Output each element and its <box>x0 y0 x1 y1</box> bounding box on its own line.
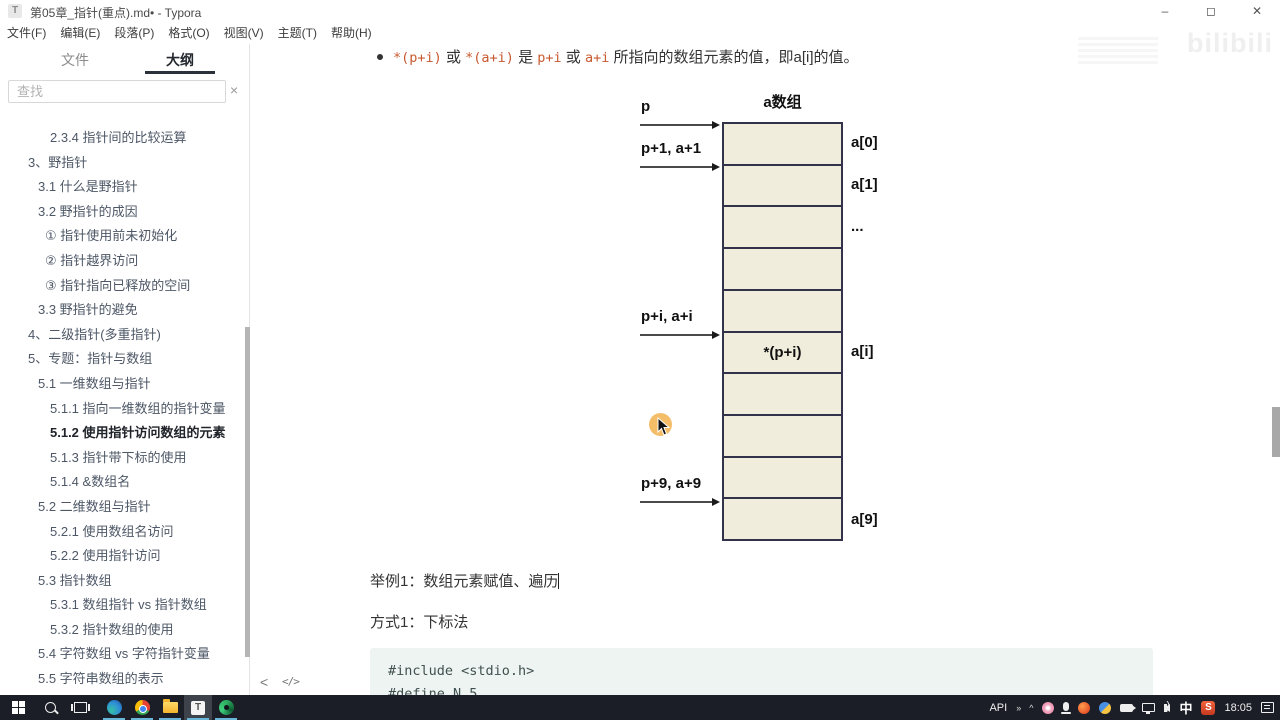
taskbar-typora-button[interactable]: T <box>184 695 212 720</box>
tab-outline[interactable]: 大纲 <box>140 50 220 70</box>
plain-text: 或 <box>562 49 585 66</box>
search-close-icon[interactable]: × <box>230 82 238 98</box>
clock[interactable]: 18:05 <box>1224 702 1252 714</box>
task-view-button[interactable] <box>66 695 94 720</box>
pointer-label: p+9, a+9 <box>641 475 701 492</box>
sidebar: 文件 大纲 × 2.3.4 指针间的比较运算3、野指针3.1 什么是野指针3.2… <box>0 44 250 695</box>
notification-center-icon[interactable] <box>1261 702 1274 713</box>
outline-item[interactable]: 4、二级指针(多重指针) <box>0 323 244 348</box>
code-line: #include <stdio.h> <box>388 660 1135 683</box>
menu-item-2[interactable]: 段落(P) <box>107 22 161 44</box>
system-tray: API » ^ 中 S 18:05 <box>989 695 1280 720</box>
array-cell-4 <box>724 291 841 333</box>
outline-item[interactable]: 5.2.2 使用指针访问 <box>0 544 244 569</box>
outline-item[interactable]: 5.1.3 指针带下标的使用 <box>0 446 244 471</box>
outline-item[interactable]: 3.2 野指针的成因 <box>0 200 244 225</box>
tab-files[interactable]: 文件 <box>35 50 115 70</box>
outline-item[interactable]: 5.1 一维数组与指针 <box>0 372 244 397</box>
outline-item[interactable]: 5.3 指针数组 <box>0 569 244 594</box>
outline-item[interactable]: 5.3.1 数组指针 vs 指针数组 <box>0 593 244 618</box>
outline-item[interactable]: 5.2.1 使用数组名访问 <box>0 520 244 545</box>
inline-code: p+i <box>537 50 561 66</box>
code-block[interactable]: #include <stdio.h>#define N 5 <box>370 648 1153 695</box>
maximize-button[interactable]: ◻ <box>1188 0 1234 22</box>
taskbar-chrome-button[interactable] <box>128 695 156 720</box>
close-button[interactable]: ✕ <box>1234 0 1280 22</box>
array-cell-1 <box>724 166 841 208</box>
watermark-uploader <box>1078 36 1158 64</box>
array-cell-3 <box>724 249 841 291</box>
outline-search-input[interactable] <box>8 80 226 103</box>
outline-item[interactable]: ② 指针越界访问 <box>0 249 244 274</box>
outline-item[interactable]: ③ 指针指向已释放的空间 <box>0 274 244 299</box>
outline-item[interactable]: 3.3 野指针的避免 <box>0 298 244 323</box>
array-cell-7 <box>724 416 841 458</box>
title-bar: T 第05章_指针(重点).md• - Typora – ◻ ✕ <box>0 0 1280 22</box>
menu-item-6[interactable]: 帮助(H) <box>324 22 379 44</box>
camera-tray-icon[interactable] <box>1120 704 1133 712</box>
array-cell-6 <box>724 374 841 416</box>
minimize-button[interactable]: – <box>1142 0 1188 22</box>
typora-icon: T <box>191 701 205 715</box>
outline-list: 2.3.4 指针间的比较运算3、野指针3.1 什么是野指针3.2 野指针的成因①… <box>0 126 244 692</box>
array-index-label: a[i] <box>851 343 874 360</box>
file-explorer-icon <box>163 702 178 713</box>
search-icon <box>45 702 56 713</box>
ime-api-label[interactable]: API <box>989 702 1007 714</box>
start-button[interactable] <box>4 695 32 720</box>
active-tab-underline <box>145 71 215 74</box>
code-line: #define N 5 <box>388 683 1135 695</box>
taskbar-search-button[interactable] <box>36 695 64 720</box>
display-tray-icon[interactable] <box>1142 703 1155 712</box>
windows-logo-icon <box>12 701 25 714</box>
array-cell-8 <box>724 458 841 500</box>
bullet-icon <box>377 54 383 60</box>
outline-item[interactable]: 5.5 字符串数组的表示 <box>0 667 244 692</box>
text-caret <box>558 573 559 589</box>
menu-item-1[interactable]: 编辑(E) <box>53 22 107 44</box>
example-text: 举例1：数组元素赋值、遍历 <box>370 573 558 590</box>
window-title: 第05章_指针(重点).md• - Typora <box>30 4 201 21</box>
pointer-arrow <box>640 501 714 503</box>
task-view-icon <box>74 702 87 713</box>
source-mode-icon[interactable]: </> <box>282 675 299 688</box>
method-heading[interactable]: 方式1：下标法 <box>370 611 468 632</box>
outline-item[interactable]: 3.1 什么是野指针 <box>0 175 244 200</box>
inline-code: a+i <box>585 50 609 66</box>
array-cell-0 <box>724 124 841 166</box>
array-cell-9 <box>724 499 841 539</box>
taskbar-edge-button[interactable] <box>100 695 128 720</box>
array-index-label: ... <box>851 218 864 235</box>
pointer-arrow <box>640 334 714 336</box>
example-heading[interactable]: 举例1：数组元素赋值、遍历 <box>370 570 559 591</box>
pointer-label: p+i, a+i <box>641 308 693 325</box>
outline-item[interactable]: 5.1.1 指向一维数组的指针变量 <box>0 397 244 422</box>
outline-item[interactable]: 5.3.2 指针数组的使用 <box>0 618 244 643</box>
taskbar-explorer-button[interactable] <box>156 695 184 720</box>
inline-code: *(a+i) <box>465 50 514 66</box>
sidebar-collapse-icon[interactable]: < <box>260 674 268 690</box>
pointer-label: p+1, a+1 <box>641 140 701 157</box>
outline-item[interactable]: 5.2 二维数组与指针 <box>0 495 244 520</box>
outline-item[interactable]: 3、野指针 <box>0 151 244 176</box>
array-cell-5: *(p+i) <box>724 333 841 375</box>
qq-tray-icon[interactable] <box>1099 702 1111 714</box>
typora-app-icon: T <box>8 4 22 18</box>
bullet-paragraph[interactable]: *(p+i) 或 *(a+i) 是 p+i 或 a+i 所指向的数组元素的值，即… <box>377 46 1197 67</box>
menu-item-4[interactable]: 视图(V) <box>217 22 271 44</box>
taskbar-recorder-button[interactable] <box>212 695 240 720</box>
array-index-label: a[1] <box>851 176 878 193</box>
taskbar: T API » ^ 中 S 18:05 <box>0 695 1280 720</box>
outline-item[interactable]: 2.3.4 指针间的比较运算 <box>0 126 244 151</box>
inline-code: *(p+i) <box>393 50 442 66</box>
recorder-app-icon <box>219 700 234 715</box>
pointer-label: p <box>641 98 650 115</box>
plain-text: 是 <box>514 49 537 66</box>
hidden-icons-button[interactable]: ^ <box>1029 703 1033 713</box>
outline-item[interactable]: 5.1.2 使用指针访问数组的元素 <box>0 421 244 446</box>
volume-icon[interactable] <box>1164 704 1170 712</box>
security-tray-icon[interactable] <box>1078 702 1090 714</box>
outline-item[interactable]: ① 指针使用前未初始化 <box>0 224 244 249</box>
diagram-array-title: a数组 <box>722 91 843 112</box>
sogou-input-icon[interactable]: S <box>1201 701 1215 715</box>
content-scrollbar[interactable] <box>1272 407 1280 457</box>
outline-item[interactable]: 5.4 字符数组 vs 字符指针变量 <box>0 642 244 667</box>
plain-text: 或 <box>442 49 465 66</box>
array-cell-2 <box>724 207 841 249</box>
menu-item-0[interactable]: 文件(F) <box>0 22 53 44</box>
array-index-label: a[9] <box>851 511 878 528</box>
chrome-icon <box>135 700 150 715</box>
flower-tray-icon[interactable] <box>1042 702 1054 714</box>
menu-item-5[interactable]: 主题(T) <box>271 22 324 44</box>
pointer-arrow <box>640 124 714 126</box>
array-diagram: *(p+i) <box>722 122 843 541</box>
outline-item[interactable]: 5.1.4 &数组名 <box>0 470 244 495</box>
edge-icon <box>107 700 122 715</box>
array-index-label: a[0] <box>851 134 878 151</box>
ime-language-indicator[interactable]: 中 <box>1179 698 1192 717</box>
microphone-tray-icon[interactable] <box>1063 702 1069 711</box>
menu-item-3[interactable]: 格式(O) <box>161 22 216 44</box>
pointer-arrow <box>640 166 714 168</box>
outline-item[interactable]: 5、专题：指针与数组 <box>0 347 244 372</box>
bullet-text: *(p+i) 或 *(a+i) 是 p+i 或 a+i 所指向的数组元素的值，即… <box>393 49 859 66</box>
chevrons-icon[interactable]: » <box>1016 703 1020 713</box>
plain-text: 所指向的数组元素的值，即a[i]的值。 <box>609 49 858 66</box>
mouse-cursor <box>657 417 671 437</box>
document-area: *(p+i) 或 *(a+i) 是 p+i 或 a+i 所指向的数组元素的值，即… <box>250 44 1280 695</box>
